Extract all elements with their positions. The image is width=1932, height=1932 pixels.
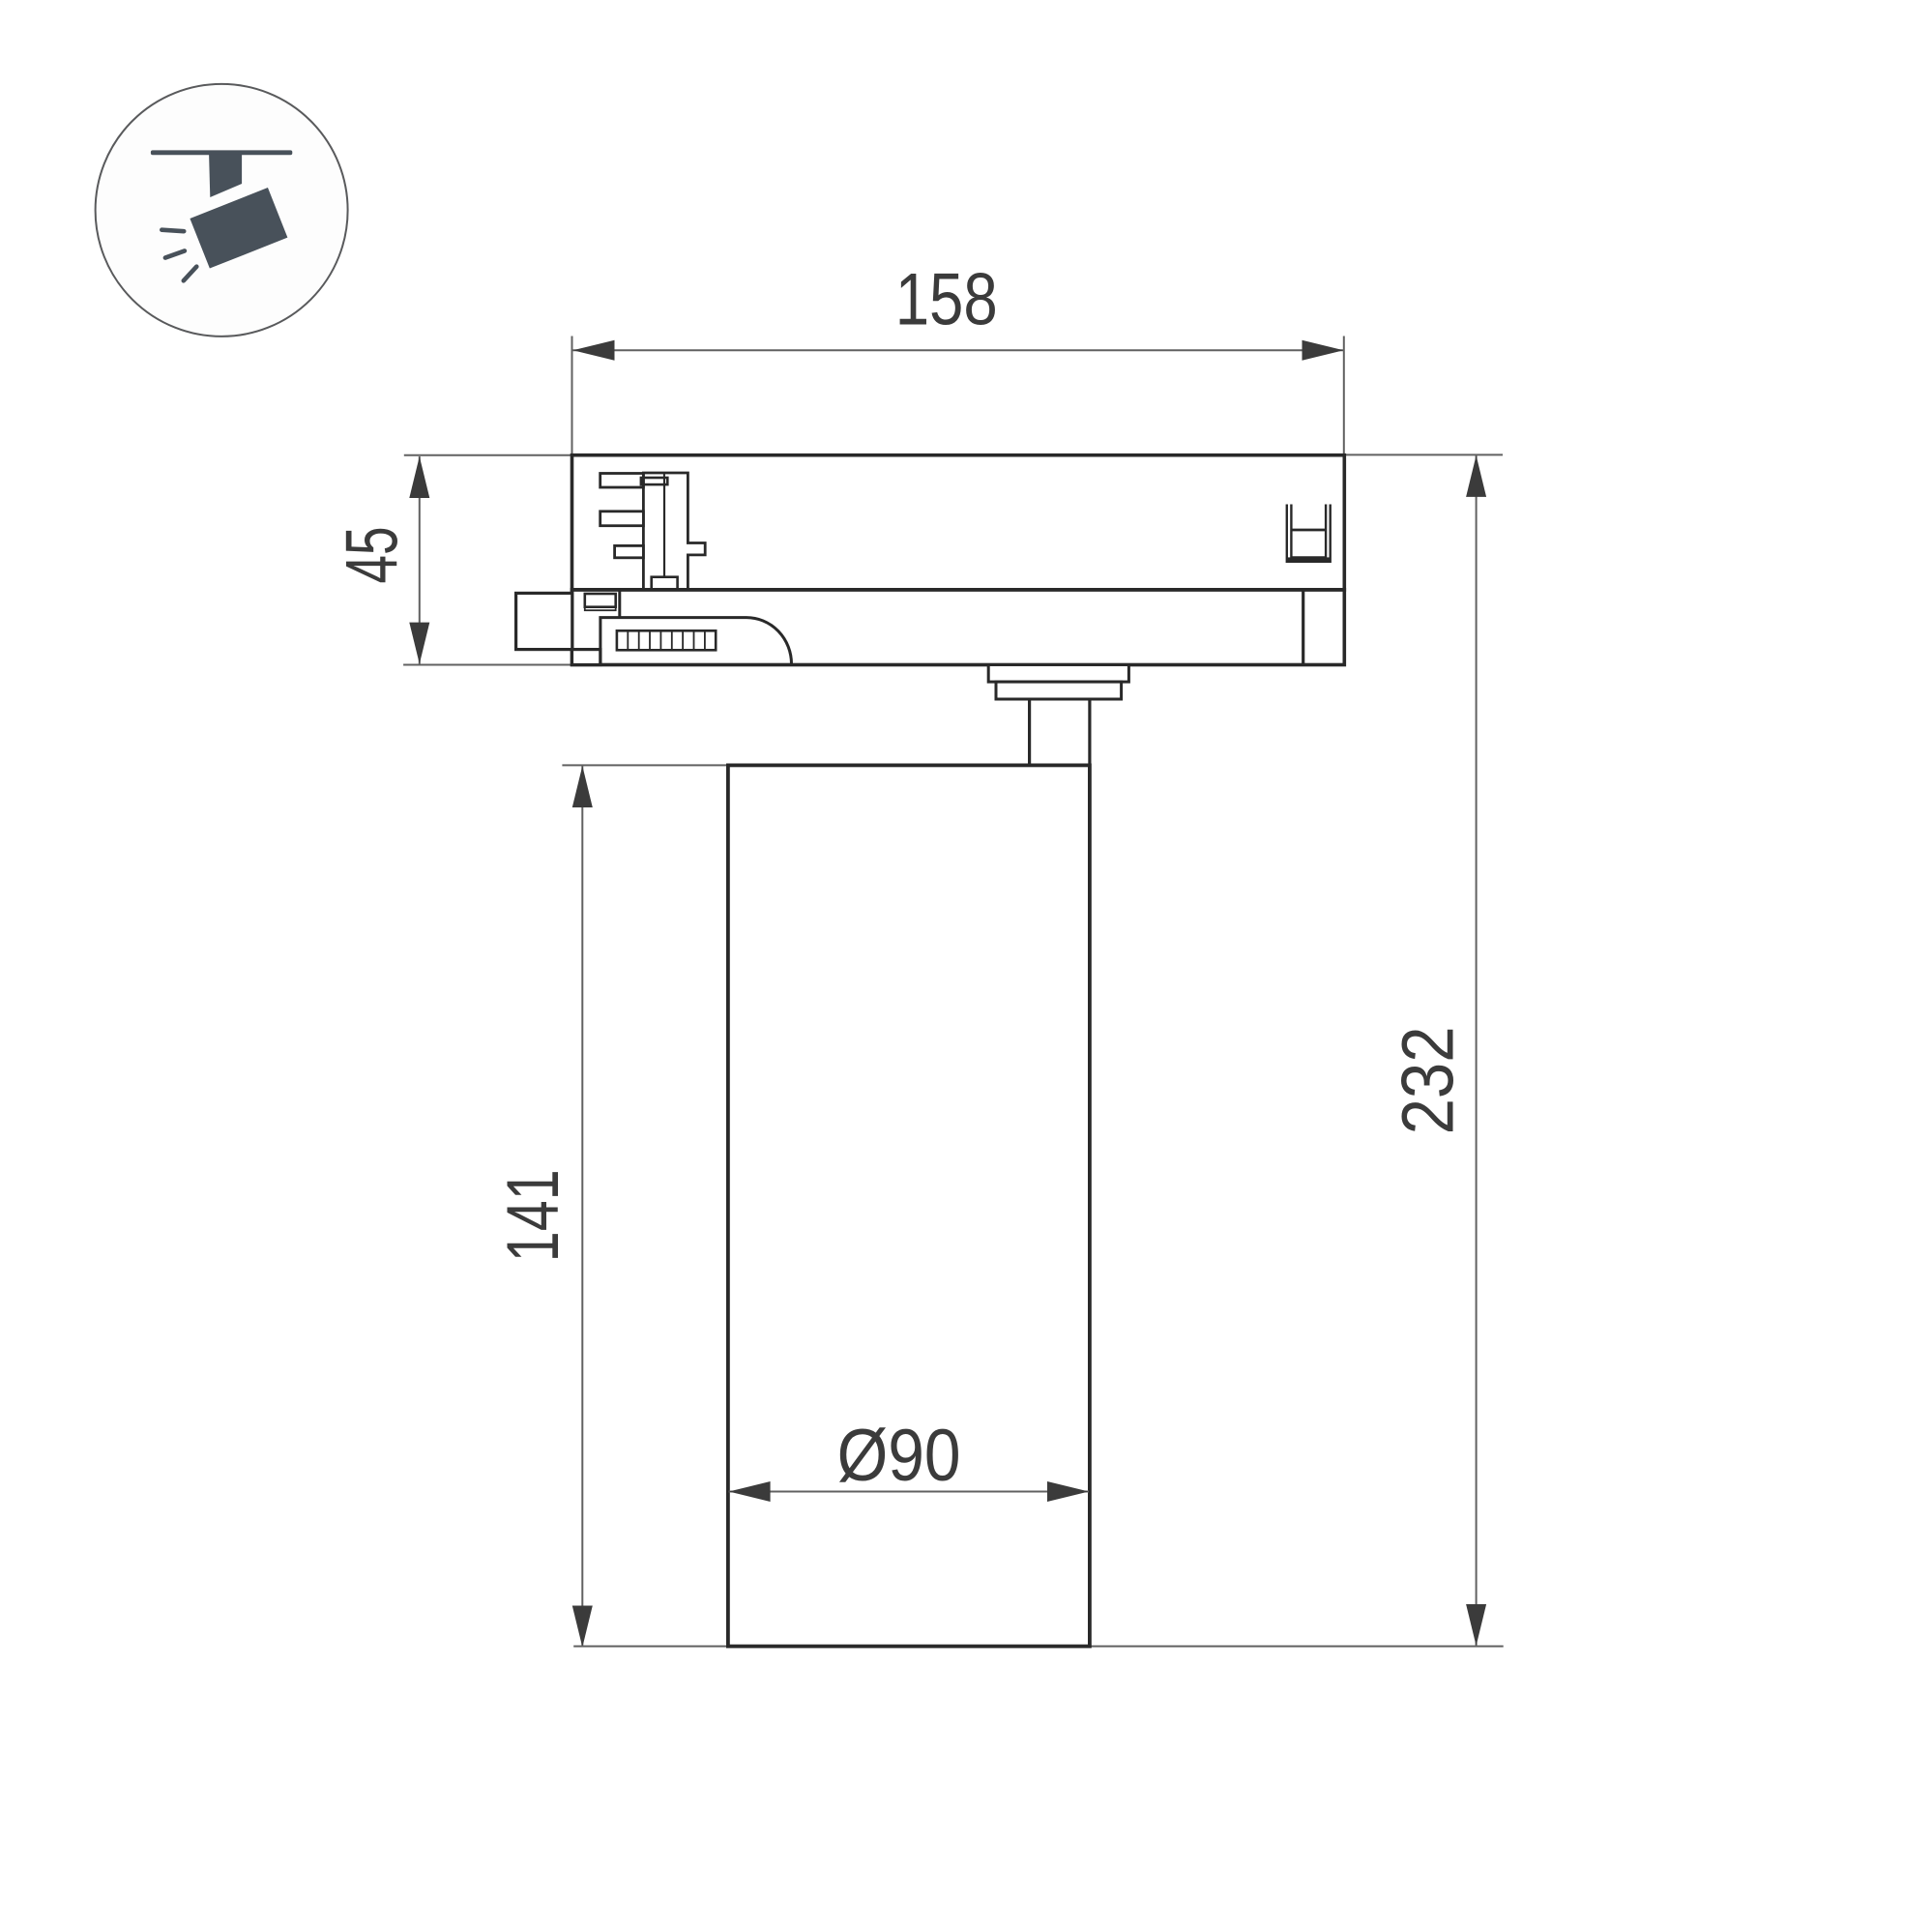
svg-text:232: 232 xyxy=(1388,1026,1470,1134)
svg-text:158: 158 xyxy=(895,259,998,341)
svg-text:141: 141 xyxy=(492,1169,574,1262)
svg-text:45: 45 xyxy=(332,527,414,584)
svg-text:Ø90: Ø90 xyxy=(837,1415,961,1497)
